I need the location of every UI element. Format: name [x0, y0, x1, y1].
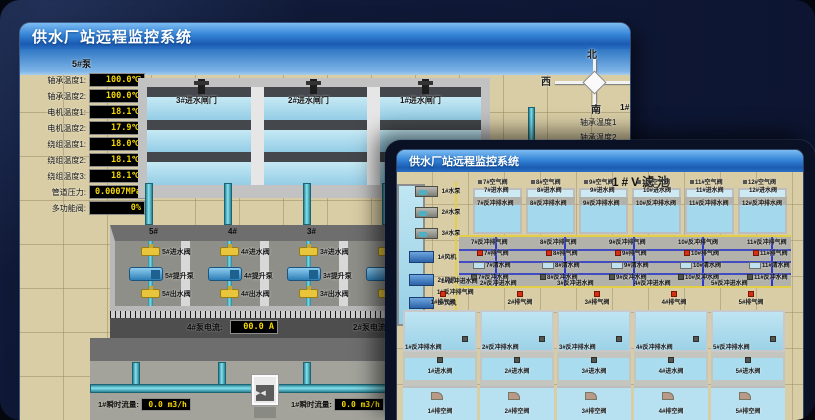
gate-valve-label: 1#进水闸门: [400, 95, 441, 106]
pump2-current-label: 2#泵电流:: [353, 322, 389, 333]
lift-pump-icon[interactable]: [129, 267, 163, 281]
lift-pump-label: 4#提升泵: [244, 271, 273, 281]
filter-cell: 3#反冲排水阀 3#进水阀 3#排空阀: [557, 310, 631, 420]
lift-pump-icon[interactable]: [287, 267, 321, 281]
back-window-title: 供水厂站远程监控系统: [32, 26, 192, 47]
bottom-filter-cells: 1#反冲排水阀 1#进水阀 1#排空阀 2#反冲排水阀 2#进水阀: [397, 172, 803, 420]
gate-valve-label: 3#进水闸门: [176, 95, 217, 106]
empty-valve-label[interactable]: 1#排空阀: [403, 406, 477, 415]
lift-pump-label: 5#提升泵: [165, 271, 194, 281]
screen: 供水厂站远程监控系统 取水泵房 5#泵 轴承温度1: 100.0℃ 轴承温度2:…: [0, 0, 815, 420]
filter-cell: 4#反冲排水阀 4#进水阀 4#排空阀: [634, 310, 708, 420]
flow-label: 1#瞬时流量:: [98, 399, 139, 410]
inlet-valve-label: 4#进水阀: [241, 247, 270, 257]
filter-window: 供水厂站远程监控系统 1#V滤池 1#水泵 2#水泵: [397, 150, 803, 420]
backwash-drain-valve-label[interactable]: 4#反冲排水阀: [636, 342, 673, 351]
filter-cell: 2#反冲排水阀 2#进水阀 2#排空阀: [480, 310, 554, 420]
pump-bay: 4# 4#进水阀 4#提升泵 4#出水阀: [200, 241, 269, 306]
valve-icon[interactable]: [462, 336, 468, 342]
sensor-label: 轴承温度1: [580, 117, 630, 128]
backwash-drain-valve-label[interactable]: 3#反冲排水阀: [559, 342, 596, 351]
valve-icon[interactable]: [668, 357, 674, 363]
outlet-valve-icon[interactable]: [220, 289, 239, 298]
bay-riser-pipe-icon: [303, 183, 311, 225]
flow-readout-2: 1#瞬时流量: 0.0 m3/h: [291, 398, 384, 411]
flow-value: 0.0 m3/h: [141, 398, 191, 411]
pump-bay: 5# 5#进水阀 5#提升泵 5#出水阀: [121, 241, 190, 306]
inlet-valve-label[interactable]: 5#进水阀: [711, 366, 785, 375]
elbow-pipe-icon: [431, 392, 443, 400]
front-window-title: 供水厂站远程监控系统: [409, 153, 519, 169]
pump4-current-value: 00.0 A: [230, 320, 278, 334]
outlet-valve-label: 4#出水阀: [241, 289, 270, 299]
flow-label: 1#瞬时流量:: [291, 399, 332, 410]
elbow-pipe-icon: [508, 392, 520, 400]
filter-window-frame: 供水厂站远程监控系统 1#V滤池 1#水泵 2#水泵: [385, 140, 815, 420]
backwash-drain-valve-label[interactable]: 2#反冲排水阀: [482, 342, 519, 351]
gate-valve-icon[interactable]: [310, 79, 317, 94]
pump-bay: 3# 3#进水阀 3#提升泵 3#出水阀: [279, 241, 348, 306]
gate-valve-icon[interactable]: [198, 79, 205, 94]
bay-riser-pipe-icon: [224, 183, 232, 225]
flow-value: 0.0 m3/h: [334, 398, 384, 411]
inlet-valve-icon[interactable]: [220, 247, 239, 256]
inlet-valve-label[interactable]: 4#进水阀: [634, 366, 708, 375]
outlet-valve-label: 5#出水阀: [162, 289, 191, 299]
compass-north-label: 北: [587, 46, 597, 61]
pump1-header: 1#泵: [620, 101, 630, 113]
inlet-valve-label: 5#进水阀: [162, 247, 191, 257]
flow-readout-1: 1#瞬时流量: 0.0 m3/h: [98, 398, 191, 411]
bay-number: 4#: [228, 227, 237, 236]
flow-meter-base: [254, 407, 276, 418]
empty-valve-label[interactable]: 5#排空阀: [711, 406, 785, 415]
inlet-valve-label: 3#进水阀: [320, 247, 349, 257]
valve-icon[interactable]: [591, 357, 597, 363]
bay-number: 3#: [307, 227, 316, 236]
filter-cell: 5#反冲排水阀 5#进水阀 5#排空阀: [711, 310, 785, 420]
outlet-valve-icon[interactable]: [299, 289, 318, 298]
compass-star-icon: [582, 70, 606, 94]
inlet-valve-icon[interactable]: [141, 247, 160, 256]
valve-icon[interactable]: [693, 336, 699, 342]
bay-number: 5#: [149, 227, 158, 236]
elbow-pipe-icon: [585, 392, 597, 400]
filter-scene: 1#V滤池 1#水泵 2#水泵 3#水泵: [397, 172, 803, 420]
gate-valve-icon[interactable]: [422, 79, 429, 94]
outlet-valve-label: 3#出水阀: [320, 289, 349, 299]
pump1-sensor-panel: 1#泵 轴承温度1轴承温度2: [580, 101, 630, 143]
valve-icon[interactable]: [437, 357, 443, 363]
lift-pump-icon[interactable]: [208, 267, 242, 281]
inlet-valve-label[interactable]: 1#进水阀: [403, 366, 477, 375]
valve-icon[interactable]: [745, 357, 751, 363]
front-window-titlebar[interactable]: 供水厂站远程监控系统: [397, 150, 803, 172]
inlet-valve-label[interactable]: 2#进水阀: [480, 366, 554, 375]
gate-valve-label: 2#进水闸门: [288, 95, 329, 106]
empty-valve-label[interactable]: 4#排空阀: [634, 406, 708, 415]
empty-valve-label[interactable]: 2#排空阀: [480, 406, 554, 415]
backwash-drain-valve-label[interactable]: 5#反冲排水阀: [713, 342, 750, 351]
inlet-valve-icon[interactable]: [299, 247, 318, 256]
lift-pump-label: 3#提升泵: [323, 271, 352, 281]
elbow-pipe-icon: [662, 392, 674, 400]
empty-valve-label[interactable]: 3#排空阀: [557, 406, 631, 415]
valve-icon[interactable]: [616, 336, 622, 342]
valve-icon[interactable]: [514, 357, 520, 363]
pump4-current-label: 4#泵电流:: [187, 322, 223, 333]
bay-riser-pipe-icon: [145, 183, 153, 225]
flow-meter-icon[interactable]: [252, 375, 278, 405]
back-window-titlebar[interactable]: 供水厂站远程监控系统: [20, 23, 630, 49]
backwash-drain-valve-label[interactable]: 1#反冲排水阀: [405, 342, 442, 351]
valve-icon[interactable]: [539, 336, 545, 342]
inlet-valve-label[interactable]: 3#进水阀: [557, 366, 631, 375]
filter-cell: 1#反冲排水阀 1#进水阀 1#排空阀: [403, 310, 477, 420]
outlet-valve-icon[interactable]: [141, 289, 160, 298]
valve-icon[interactable]: [770, 336, 776, 342]
compass-west-label: 西: [541, 73, 551, 88]
elbow-pipe-icon: [739, 392, 751, 400]
